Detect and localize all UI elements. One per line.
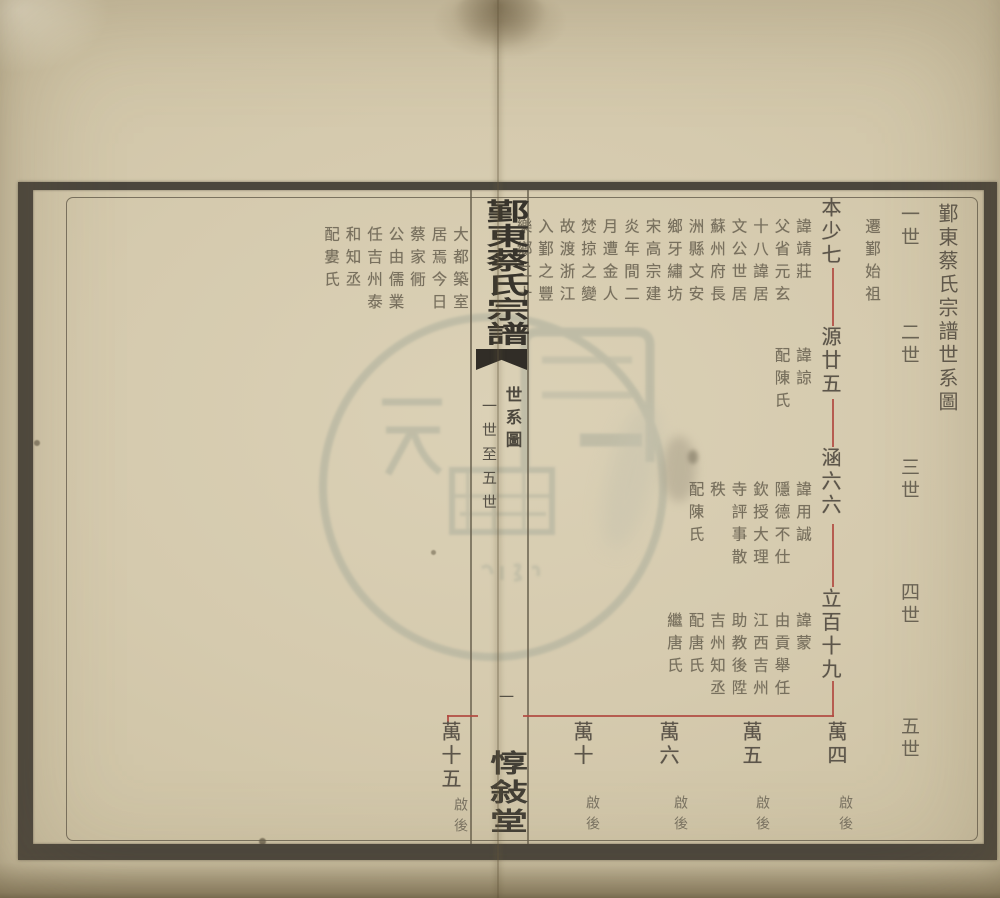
tree-line-gen5-horizontal [523,715,834,717]
scanned-genealogy-page: 鄞東蔡氏宗譜世系圖 一世 二世 三世 四世 五世 遷鄞始祖 本少七 源廿五 涵六… [0,0,1000,898]
tree-line-gen5-left-stub [447,715,449,724]
banxin-left-rule [470,190,472,844]
banxin-book-title: 鄞東蔡氏宗譜 [473,199,525,346]
tree-line-gen4-gen5 [832,681,834,717]
tree-line-gen2-gen3 [832,399,834,447]
tree-line-gen3-gen4 [832,524,834,587]
fold-wrinkle [452,0,548,50]
tree-line-gen5-horizontal-left [447,715,478,717]
banxin-right-rule [527,190,529,844]
tree-line-gen1-gen2 [832,268,834,326]
banxin-hall-name: 惇敍堂 [475,750,527,837]
